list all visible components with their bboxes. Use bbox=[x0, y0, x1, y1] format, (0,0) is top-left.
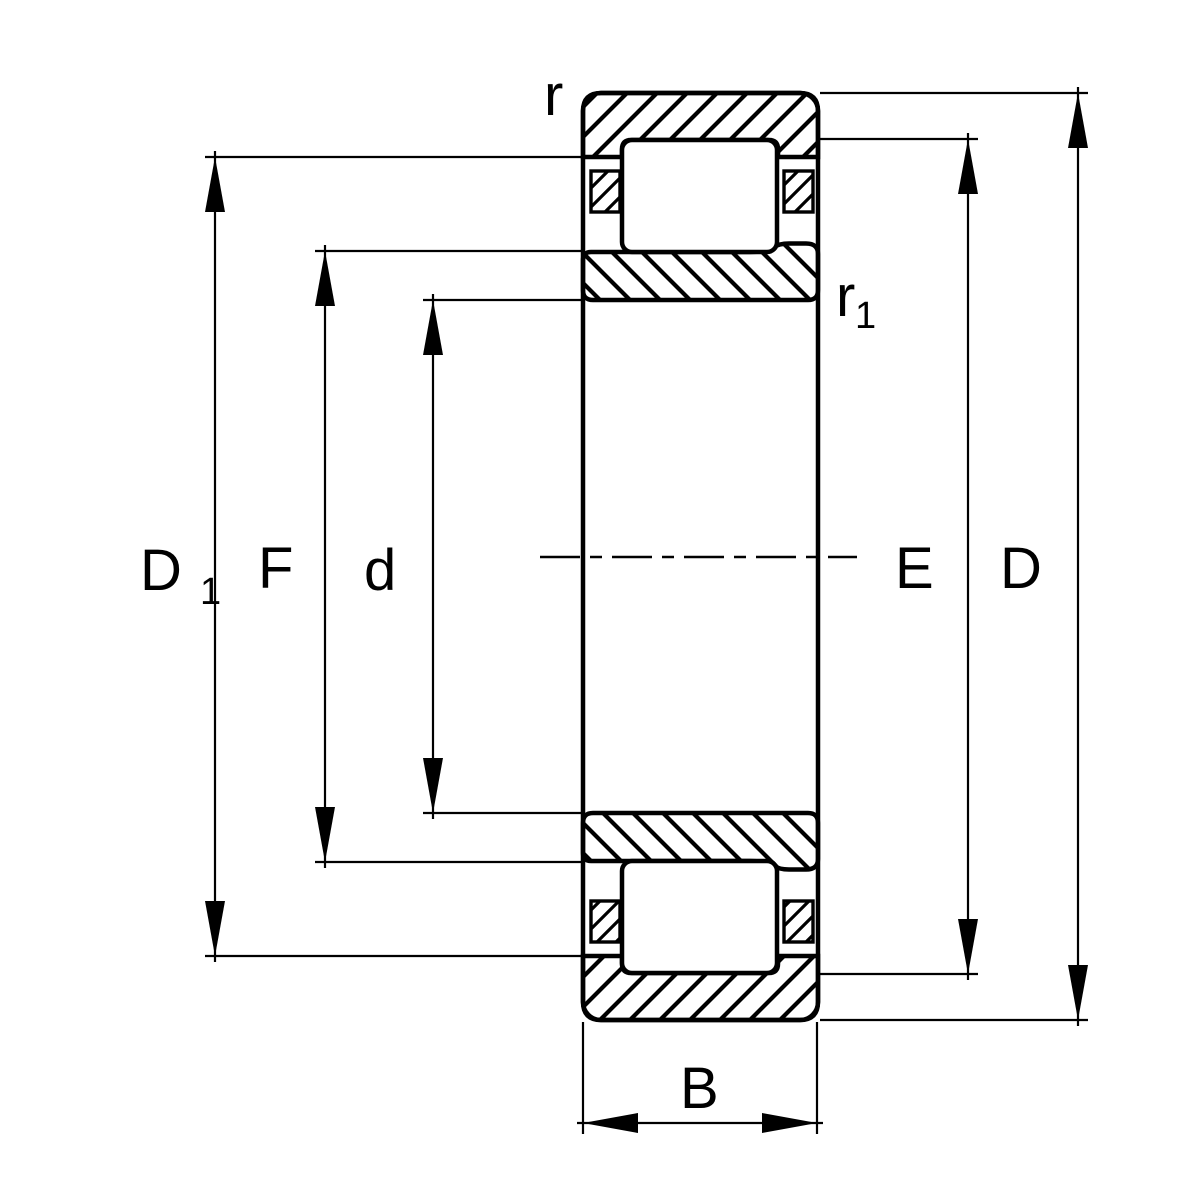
label-inner-corner-radius-r1: r bbox=[836, 264, 855, 329]
arrow-F-down bbox=[315, 807, 335, 862]
arrow-D-down bbox=[1068, 965, 1088, 1020]
roller-bottom bbox=[622, 861, 777, 973]
arrow-d-up bbox=[423, 300, 443, 355]
label-flange-diameter-D1-subscript: 1 bbox=[200, 571, 221, 613]
cage-bottom-left bbox=[591, 901, 620, 942]
arrow-d-down bbox=[423, 758, 443, 813]
roller-top bbox=[622, 140, 777, 252]
label-inner-corner-radius-r1-subscript: 1 bbox=[855, 295, 876, 337]
arrow-D1-up bbox=[205, 157, 225, 212]
cage-top-left bbox=[591, 171, 620, 212]
label-inner-raceway-diameter-F: F bbox=[258, 536, 293, 601]
label-width-B: B bbox=[680, 1056, 719, 1121]
arrow-D1-down bbox=[205, 901, 225, 956]
drawing-canvas: r r 1 D 1 F d E D B bbox=[0, 0, 1200, 1200]
arrow-F-up bbox=[315, 251, 335, 306]
label-bore-diameter-d: d bbox=[364, 538, 396, 603]
label-outer-corner-radius-r: r bbox=[544, 63, 563, 128]
bearing-technical-drawing: r r 1 D 1 F d E D B bbox=[0, 0, 1200, 1200]
arrow-D-up bbox=[1068, 93, 1088, 148]
arrow-E-up bbox=[958, 139, 978, 194]
label-flange-diameter-D1: D bbox=[140, 538, 182, 603]
label-outside-diameter-D: D bbox=[1000, 536, 1042, 601]
arrow-B-right bbox=[762, 1113, 817, 1133]
bearing-cross-section bbox=[540, 93, 857, 1020]
arrow-B-left bbox=[583, 1113, 638, 1133]
cage-top-right bbox=[784, 171, 813, 212]
label-outer-raceway-diameter-E: E bbox=[895, 536, 934, 601]
cage-bottom-right bbox=[784, 901, 813, 942]
arrow-E-down bbox=[958, 919, 978, 974]
